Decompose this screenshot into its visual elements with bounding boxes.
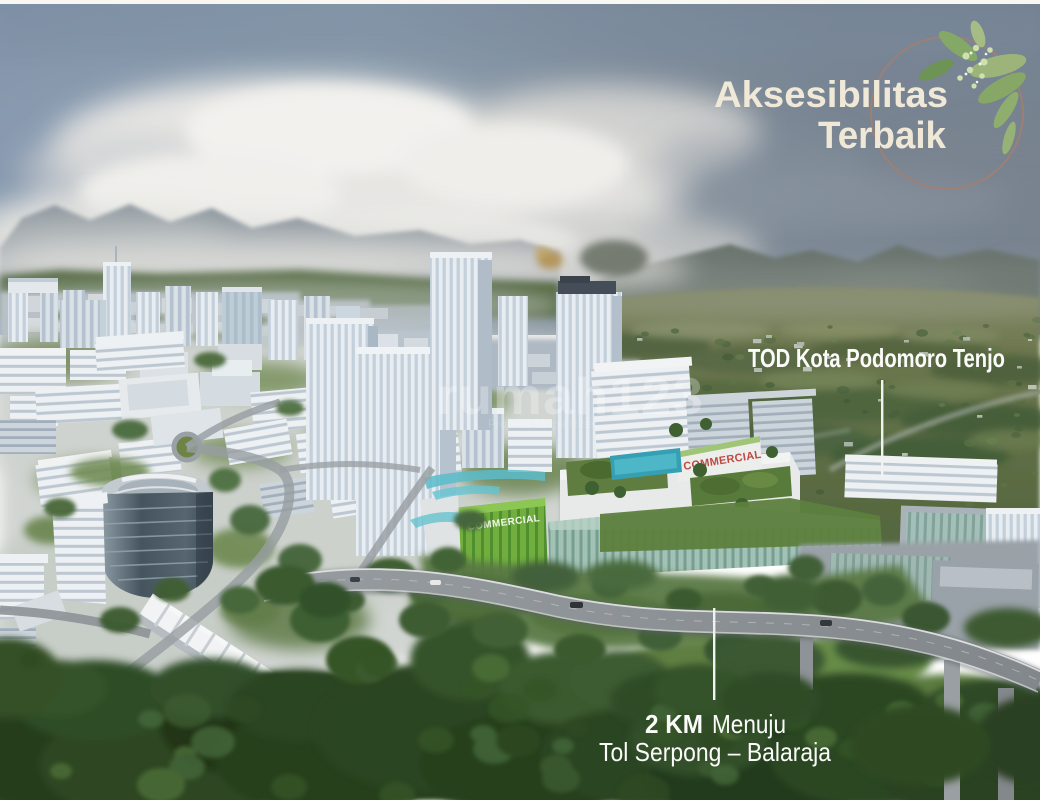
svg-text:TOD Kota Podomoro Tenjo: TOD Kota Podomoro Tenjo xyxy=(748,343,1005,373)
svg-text:Tol Serpong – Balaraja: Tol Serpong – Balaraja xyxy=(599,737,831,767)
svg-text:Aksesibilitas: Aksesibilitas xyxy=(714,74,948,115)
svg-text:Terbaik: Terbaik xyxy=(818,115,947,157)
svg-text:Properti Tanpa Ribet: Properti Tanpa Ribet xyxy=(488,417,598,431)
svg-text:2 KM: 2 KM xyxy=(645,709,703,739)
svg-text:Menuju: Menuju xyxy=(712,709,786,739)
